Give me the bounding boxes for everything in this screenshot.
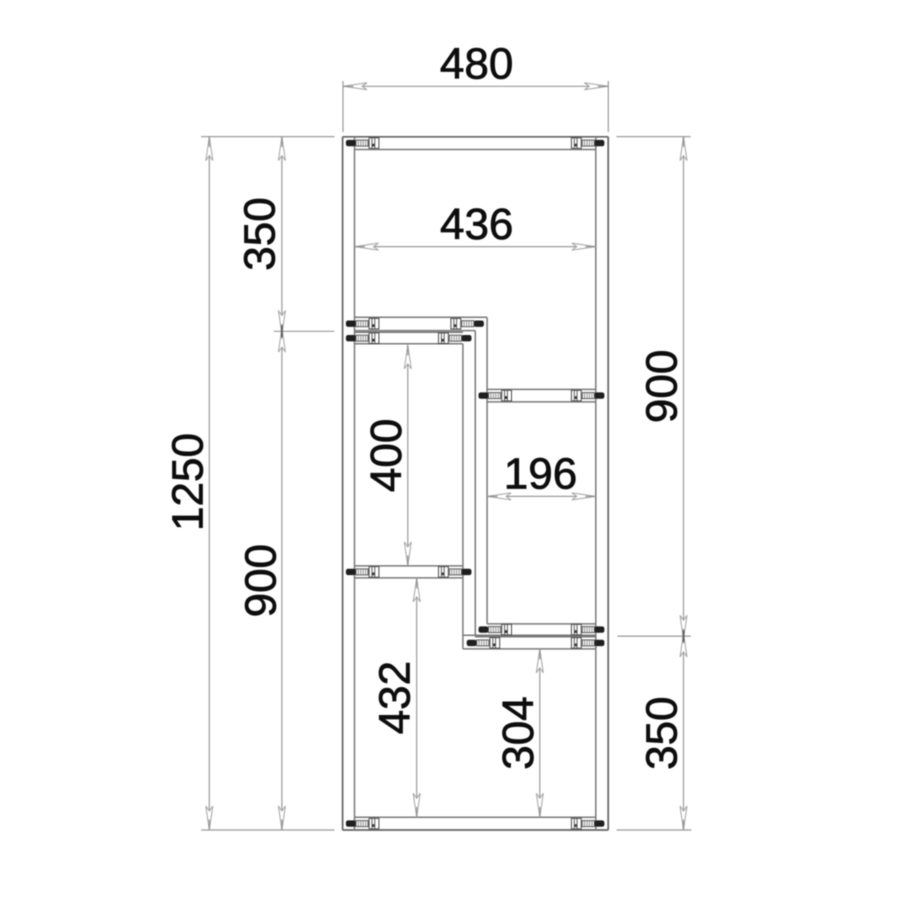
svg-text:350: 350 bbox=[236, 197, 285, 270]
svg-text:480: 480 bbox=[440, 40, 513, 89]
svg-text:1250: 1250 bbox=[163, 433, 212, 531]
svg-text:436: 436 bbox=[440, 200, 513, 249]
svg-text:196: 196 bbox=[504, 450, 577, 499]
svg-text:350: 350 bbox=[637, 696, 686, 769]
svg-text:900: 900 bbox=[236, 544, 285, 617]
svg-text:900: 900 bbox=[637, 350, 686, 423]
svg-text:304: 304 bbox=[494, 696, 543, 769]
svg-text:400: 400 bbox=[362, 419, 411, 492]
svg-text:432: 432 bbox=[371, 661, 420, 734]
